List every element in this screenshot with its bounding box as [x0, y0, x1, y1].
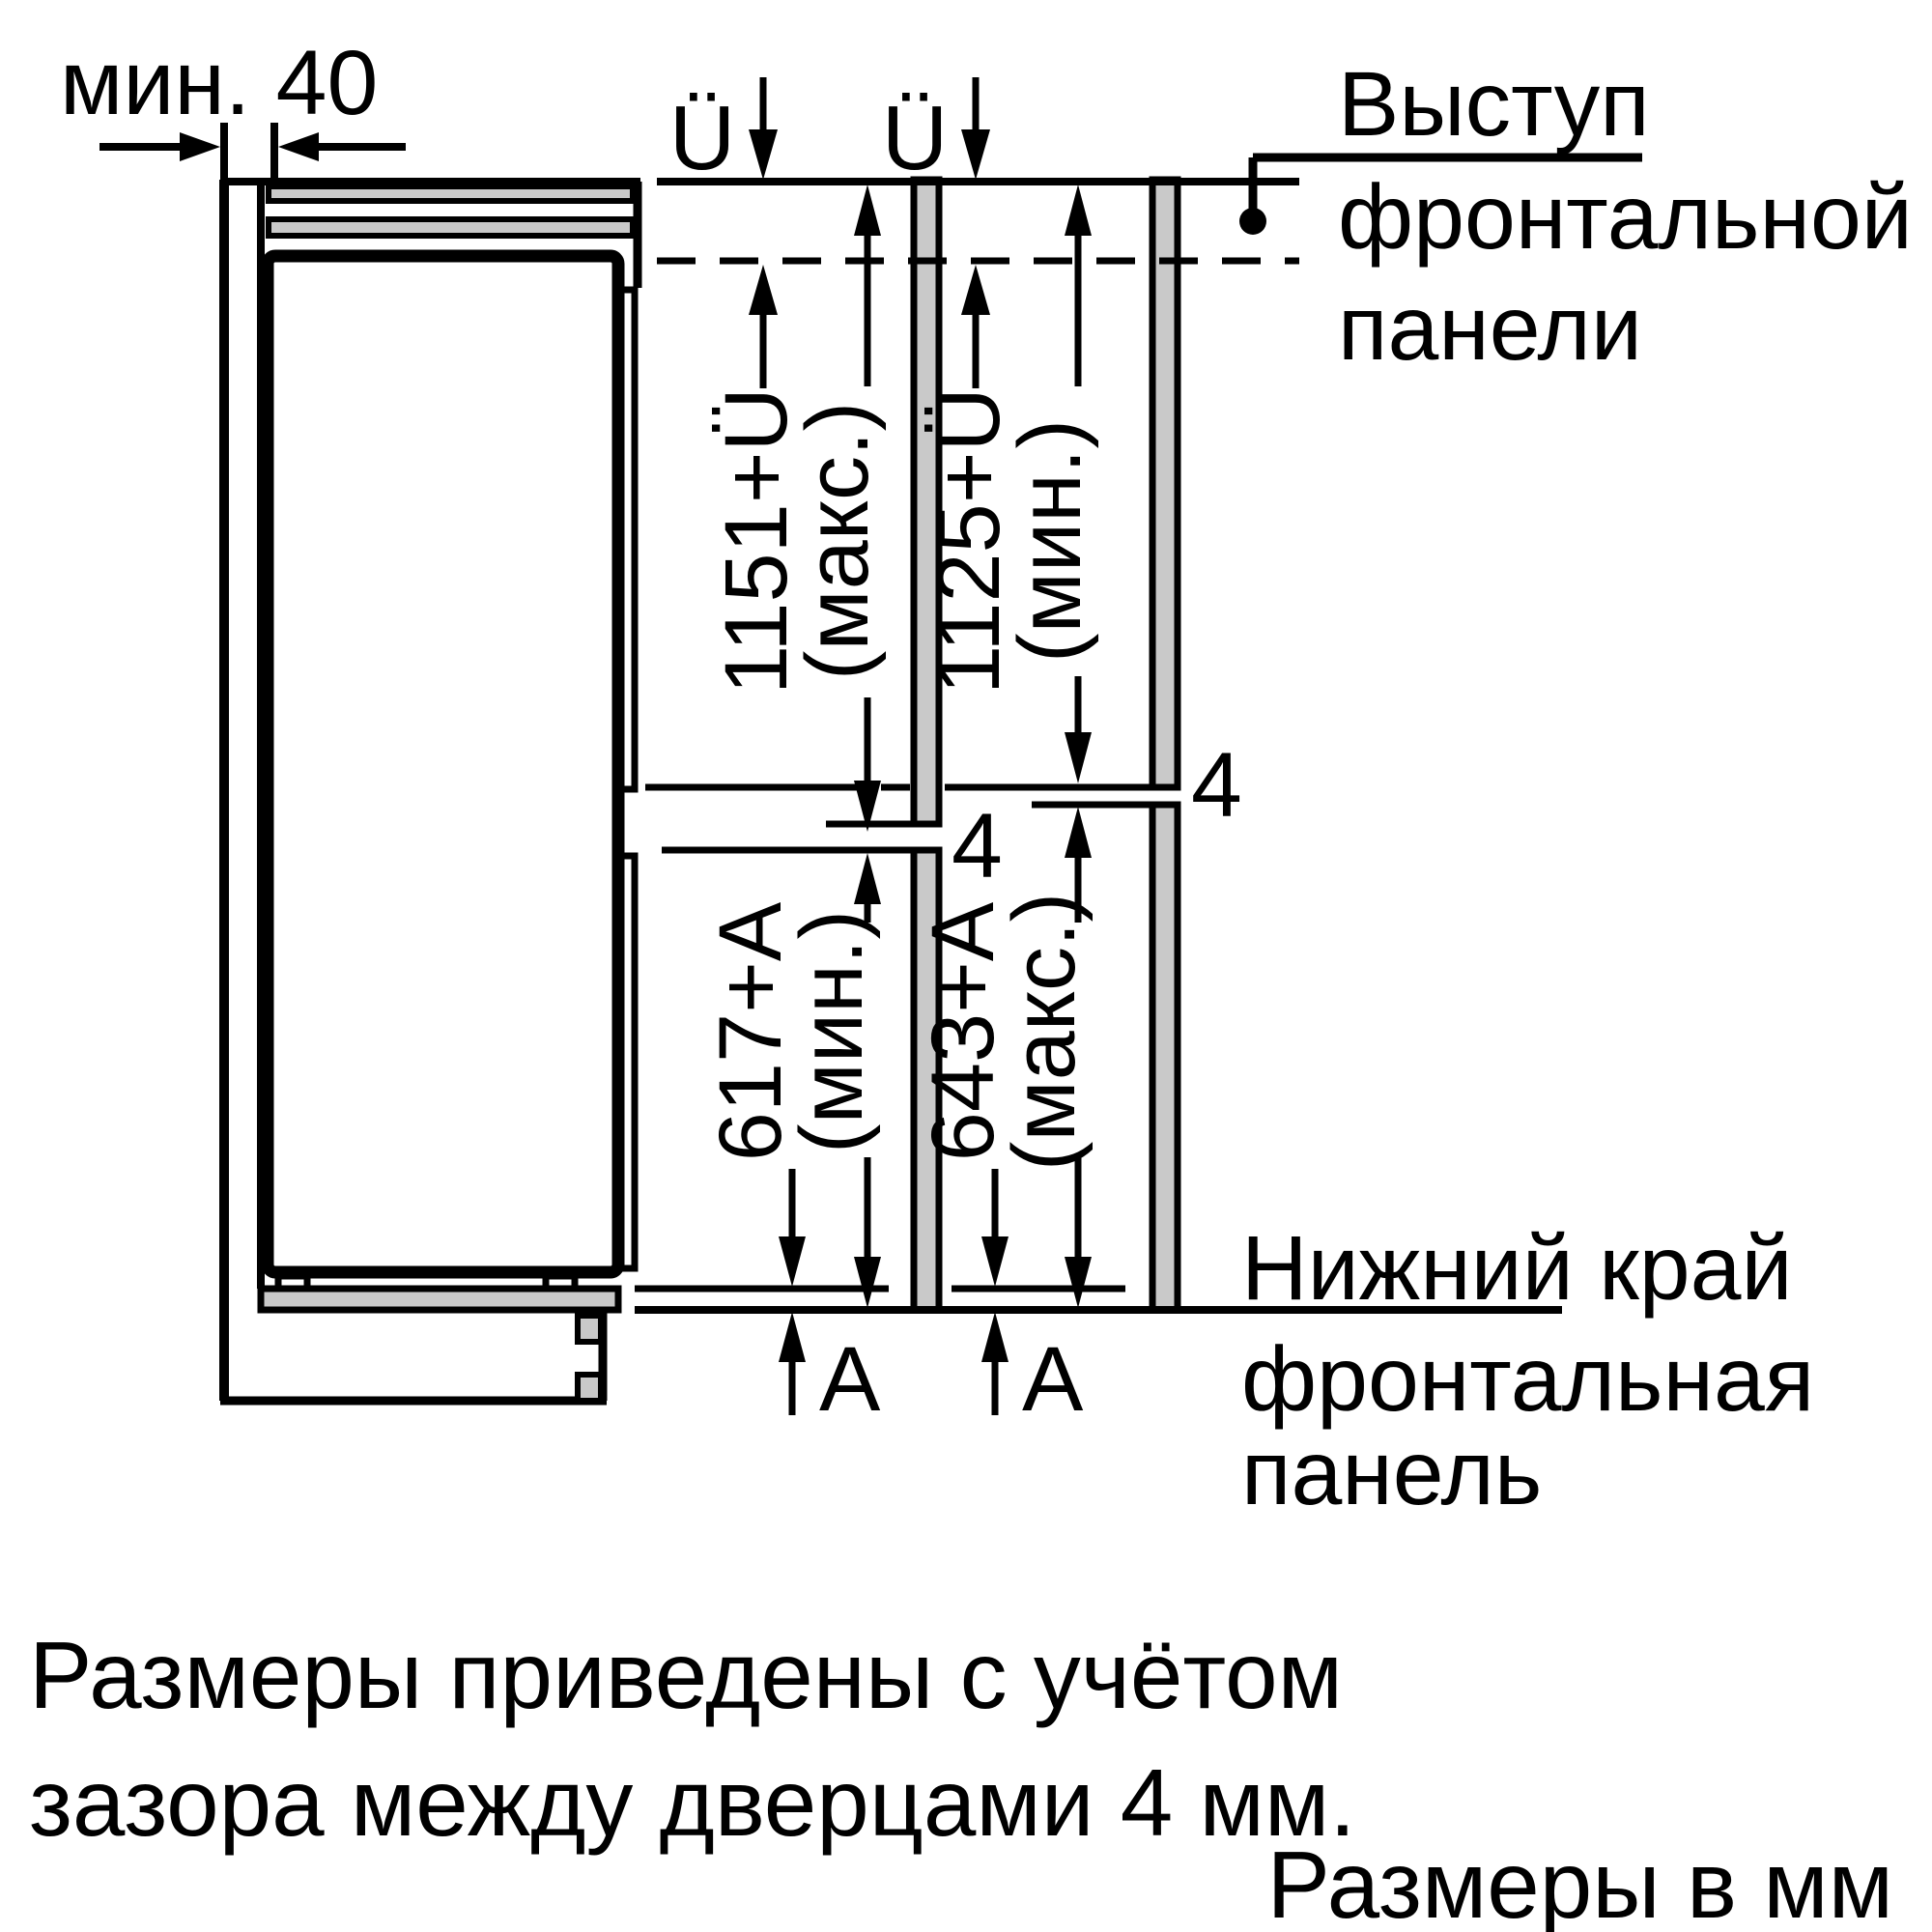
plinth-block-upper — [578, 1316, 601, 1342]
appliance-body — [268, 256, 618, 1272]
front-panel-right-upper — [1152, 180, 1178, 787]
dim-1125-top-head-icon — [1065, 185, 1092, 236]
callout-bottom-line1: Нижний край — [1241, 1217, 1793, 1320]
protrusion-left-down-head-icon — [779, 1236, 806, 1287]
protrusion-left-label: A — [819, 1328, 881, 1431]
protrusion-right-up-head-icon — [981, 1312, 1009, 1362]
footnote-line2: зазора между дверцами 4 мм. — [29, 1749, 1355, 1856]
min40-dimension: мин. 40 — [60, 32, 406, 185]
gap-left-label: 4 — [952, 795, 1003, 897]
callout-bottom-line3: панель — [1241, 1422, 1542, 1524]
protrusion-right-down-head-icon — [981, 1236, 1009, 1287]
protrusion-left-up-head-icon — [779, 1312, 806, 1362]
min40-arrow-left-head-icon — [180, 132, 220, 161]
dim-1151-qualifier: (макс.) — [788, 402, 887, 681]
gap-right-label: 4 — [1191, 734, 1242, 837]
dimension-1151: 1151+Ü (макс.) — [707, 185, 887, 832]
callout-top-line3: панели — [1338, 277, 1642, 380]
min40-arrow-right-head-icon — [278, 132, 319, 161]
protrusion-right-label: A — [1022, 1328, 1084, 1431]
overhang-right-label: Ü — [882, 87, 949, 189]
overhang-dimension-left: Ü — [669, 77, 778, 388]
diagram-canvas: мин. 40 Ü Ü 1151+Ü (макс.) 1125+Ü — [0, 0, 1932, 1932]
installation-diagram: мин. 40 Ü Ü 1151+Ü (макс.) 1125+Ü — [0, 0, 1932, 1932]
top-vent-strip-2 — [269, 219, 633, 236]
callout-bottom-line2: фронтальная — [1241, 1328, 1814, 1431]
front-panel-right-lower — [1152, 805, 1178, 1310]
overhang-left-label: Ü — [669, 87, 736, 189]
dim-1125-qualifier: (мин.) — [1001, 419, 1099, 663]
callout-top-line2: фронтальной — [1338, 166, 1913, 269]
appliance-door-lower — [621, 856, 635, 1268]
front-panel-right — [1152, 180, 1178, 1310]
bottom-edge-callout: Нижний край фронтальная панель — [1241, 1217, 1814, 1524]
overhang-left-down-head-icon — [749, 129, 778, 180]
bottom-vent-strip — [261, 1289, 618, 1310]
overhang-right-down-head-icon — [961, 129, 990, 180]
min40-label: мин. 40 — [60, 32, 378, 134]
dim-643-qualifier: (макс.) — [995, 893, 1094, 1172]
protrusion-dimension-right: A — [981, 1169, 1084, 1431]
dimension-1125: 1125+Ü (мин.) — [920, 185, 1099, 783]
footnote-line1: Размеры приведены с учётом — [29, 1622, 1343, 1728]
dim-617-top-head-icon — [854, 853, 881, 904]
callout-dot-icon — [1239, 208, 1266, 235]
plinth-block-lower — [578, 1375, 601, 1401]
dim-643-bottom-head-icon — [1065, 1257, 1092, 1308]
dim-643-top-head-icon — [1065, 807, 1092, 858]
callout-top-line1: Выступ — [1338, 53, 1650, 156]
top-vent-strip-1 — [269, 186, 633, 201]
dim-617-qualifier: (мин.) — [782, 910, 881, 1153]
appliance-door-upper — [621, 290, 635, 789]
front-panel-protrusion-callout: Выступ фронтальной панели — [1239, 53, 1913, 380]
dim-1125-bottom-head-icon — [1065, 732, 1092, 783]
units-note: Размеры в мм — [1266, 1832, 1893, 1932]
dim-1151-top-head-icon — [854, 185, 881, 236]
dim-617-bottom-head-icon — [854, 1257, 881, 1308]
overhang-left-up-head-icon — [749, 265, 778, 315]
overhang-right-up-head-icon — [961, 265, 990, 315]
